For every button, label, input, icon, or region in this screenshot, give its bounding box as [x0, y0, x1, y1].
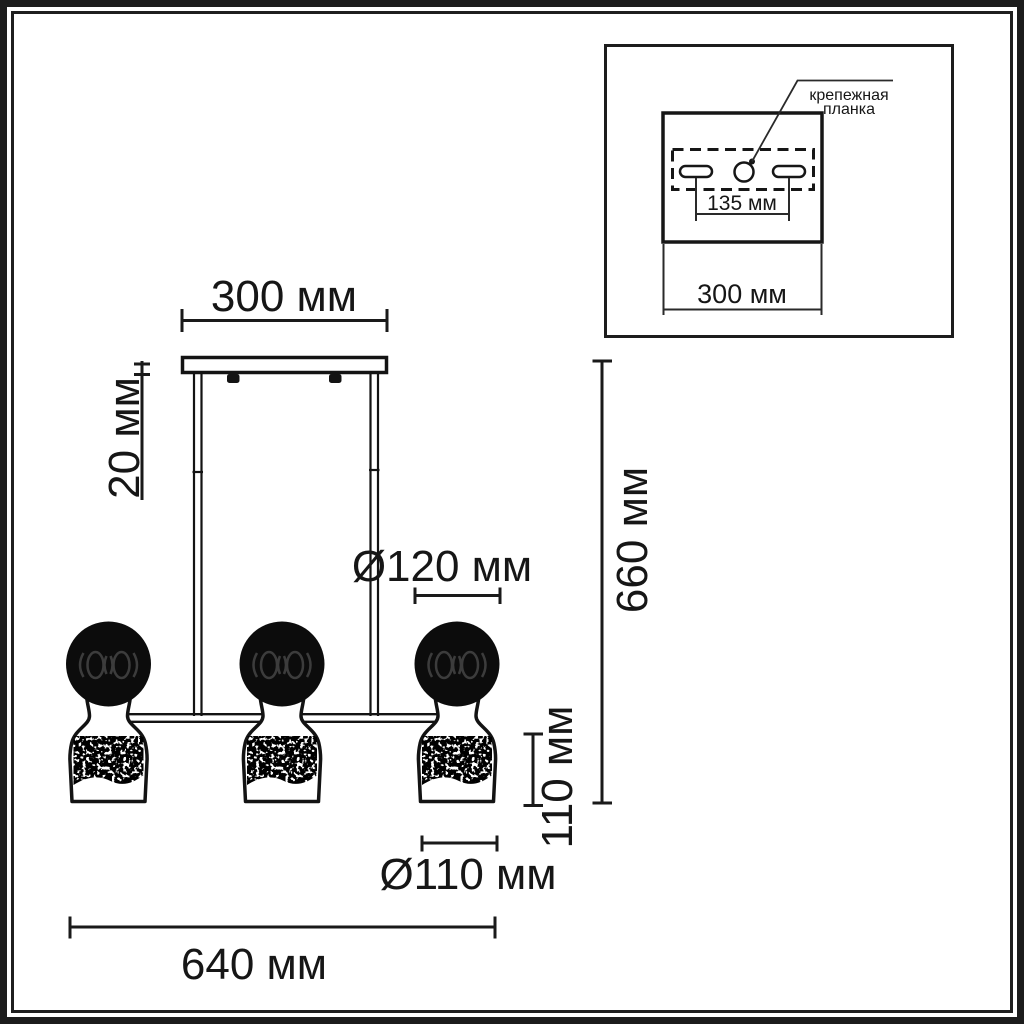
mounting-detail-inset: крепежная планка 135 мм 300 мм: [606, 46, 953, 337]
dim-total-width: [70, 917, 495, 939]
dim-shade-diameter-label: Ø110 мм: [379, 850, 556, 899]
suspension-rod-left: [193, 370, 204, 716]
chandelier-dimension-diagram: 300 мм 20 мм Ø120 мм 660 мм 110 мм Ø110 …: [0, 0, 1024, 1024]
dim-shade-height-label: 110 мм: [533, 706, 582, 849]
main-dimensions: [70, 309, 612, 939]
dim-total-height-label: 660 мм: [608, 467, 657, 613]
dim-plate-width-label: 300 мм: [697, 279, 787, 309]
dim-canopy-height-label: 20 мм: [100, 377, 149, 499]
dim-canopy-width-label: 300 мм: [211, 272, 357, 321]
mounting-slot-right: [773, 166, 805, 177]
mounting-plate-label-line2: планка: [823, 101, 875, 118]
canopy-hanger-dot-right: [329, 374, 342, 383]
canopy-hanger-dot-left: [227, 374, 240, 383]
technical-drawing-page: 300 мм 20 мм Ø120 мм 660 мм 110 мм Ø110 …: [0, 0, 1024, 1024]
center-hole: [735, 163, 754, 182]
ceiling-canopy: [183, 358, 387, 373]
lamp-1: [66, 622, 151, 802]
lamp-3: [415, 622, 500, 802]
dim-total-width-label: 640 мм: [181, 940, 327, 989]
mounting-slot-left: [680, 166, 712, 177]
dim-sphere-diameter-label: Ø120 мм: [352, 542, 532, 591]
dim-hole-spacing-label: 135 мм: [707, 192, 777, 215]
lamp-2: [240, 622, 325, 802]
